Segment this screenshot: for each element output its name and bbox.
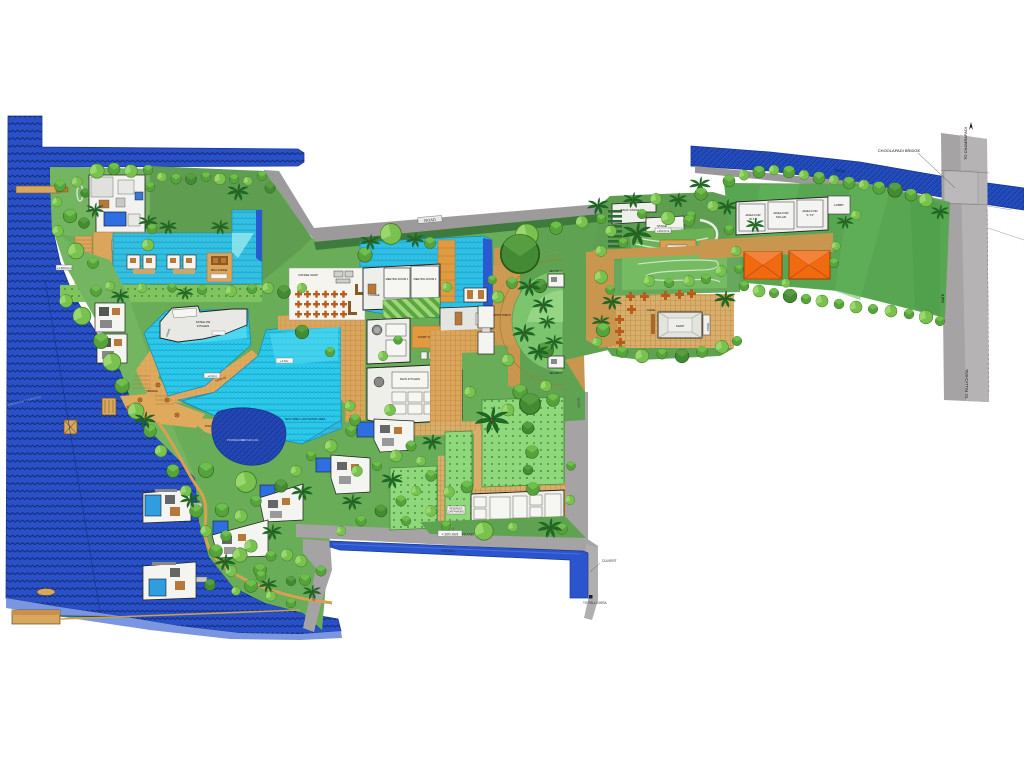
svg-text:ENTRY PORCH: ENTRY PORCH [493, 314, 511, 317]
svg-text:SECURITY: SECURITY [549, 269, 562, 273]
svg-text:PROMENADE: PROMENADE [227, 438, 245, 442]
svg-text:BACK STAGE: BACK STAGE [621, 208, 640, 212]
svg-text:CHOOLAPADI BRIDGE: CHOOLAPADI BRIDGE [878, 148, 921, 153]
svg-text:STORE: STORE [707, 323, 710, 332]
svg-text:TO CHAMRAPADI: TO CHAMRAPADI [963, 127, 968, 160]
svg-text:+2.0mt: +2.0mt [207, 374, 216, 378]
svg-text:S.T.P: S.T.P [806, 213, 813, 217]
svg-text:SECURITY: SECURITY [549, 371, 562, 375]
svg-text:COFFEE SHOP: COFFEE SHOP [298, 273, 318, 277]
svg-text:GATE: GATE [941, 293, 945, 303]
svg-text:MEETING ROOM 1: MEETING ROOM 1 [386, 277, 409, 281]
svg-text:TO PALLICHIRA: TO PALLICHIRA [964, 369, 969, 399]
svg-text:CULVERT: CULVERT [602, 559, 617, 563]
svg-text:ROAD: ROAD [462, 532, 474, 537]
svg-text:+100.0mt: +100.0mt [442, 532, 460, 537]
svg-text:+1.5m: +1.5m [280, 359, 289, 363]
svg-text:CAFE: CAFE [647, 308, 655, 312]
svg-text:MEETING ROOM 2: MEETING ROOM 2 [414, 277, 437, 281]
svg-text:LOBBY: LOBBY [834, 203, 844, 207]
svg-text:+1,500.0mt: +1,500.0mt [56, 266, 71, 270]
svg-text:TERRACE: TERRACE [146, 390, 158, 393]
svg-text:MAIN KITCHEN: MAIN KITCHEN [400, 377, 420, 381]
svg-text:+200.0mt: +200.0mt [657, 229, 670, 233]
svg-text:SPA LOUNGE: SPA LOUNGE [211, 268, 228, 272]
svg-text:KITCHEN: KITCHEN [197, 324, 209, 328]
svg-text:TO PALLICHIRA: TO PALLICHIRA [583, 601, 607, 605]
svg-text:CAR PARKING: CAR PARKING [448, 511, 464, 514]
svg-text:THODU: THODU [441, 548, 455, 553]
svg-text:TEXTURED LOW WATER AREA: TEXTURED LOW WATER AREA [284, 417, 325, 421]
svg-text:ROAD: ROAD [424, 217, 436, 223]
svg-text:SOLAR: SOLAR [776, 215, 787, 219]
svg-text:SHOP: SHOP [676, 324, 685, 328]
